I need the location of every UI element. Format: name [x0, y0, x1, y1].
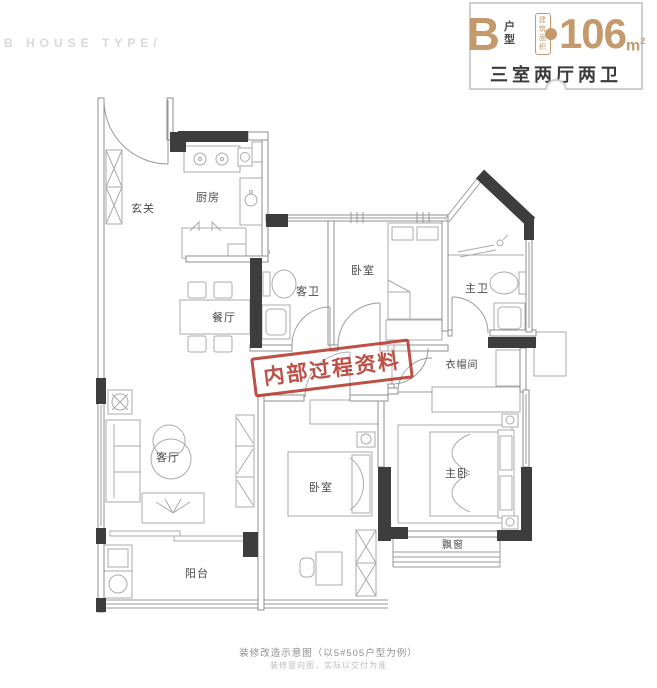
room-label-bedroom-south: 卧室 — [309, 480, 333, 494]
balcony-furniture — [104, 531, 244, 598]
floor-plan: 玄关 厨房 餐厅 客卫 卧室 主卫 衣帽间 客厅 卧室 主卧 飘窗 阳台 — [0, 0, 657, 688]
room-label-kitchen: 厨房 — [196, 191, 220, 204]
living-room — [106, 390, 254, 523]
room-label-bay-window: 飘窗 — [442, 538, 464, 551]
plan-caption: 装修改造示意图（以5#505户型为例） — [0, 645, 657, 659]
room-label-master-bath: 主卫 — [465, 282, 489, 295]
plan-disclaimer: 装修意向图，实际以交付为准 — [0, 660, 657, 671]
room-label-living: 客厅 — [156, 450, 180, 464]
room-label-balcony: 阳台 — [185, 566, 209, 580]
kitchen — [182, 142, 264, 258]
room-label-cloakroom: 衣帽间 — [446, 358, 479, 371]
foyer-shaft — [106, 150, 122, 224]
room-label-guest-bath: 客卫 — [296, 284, 320, 298]
bedroom-south-furniture — [288, 400, 378, 596]
bedroom-north-furniture — [386, 223, 442, 340]
room-label-bedroom-north: 卧室 — [351, 263, 375, 277]
room-label-dining: 餐厅 — [212, 310, 236, 324]
room-label-master-bedroom: 主卧 — [445, 467, 469, 480]
room-label-foyer: 玄关 — [131, 201, 155, 215]
